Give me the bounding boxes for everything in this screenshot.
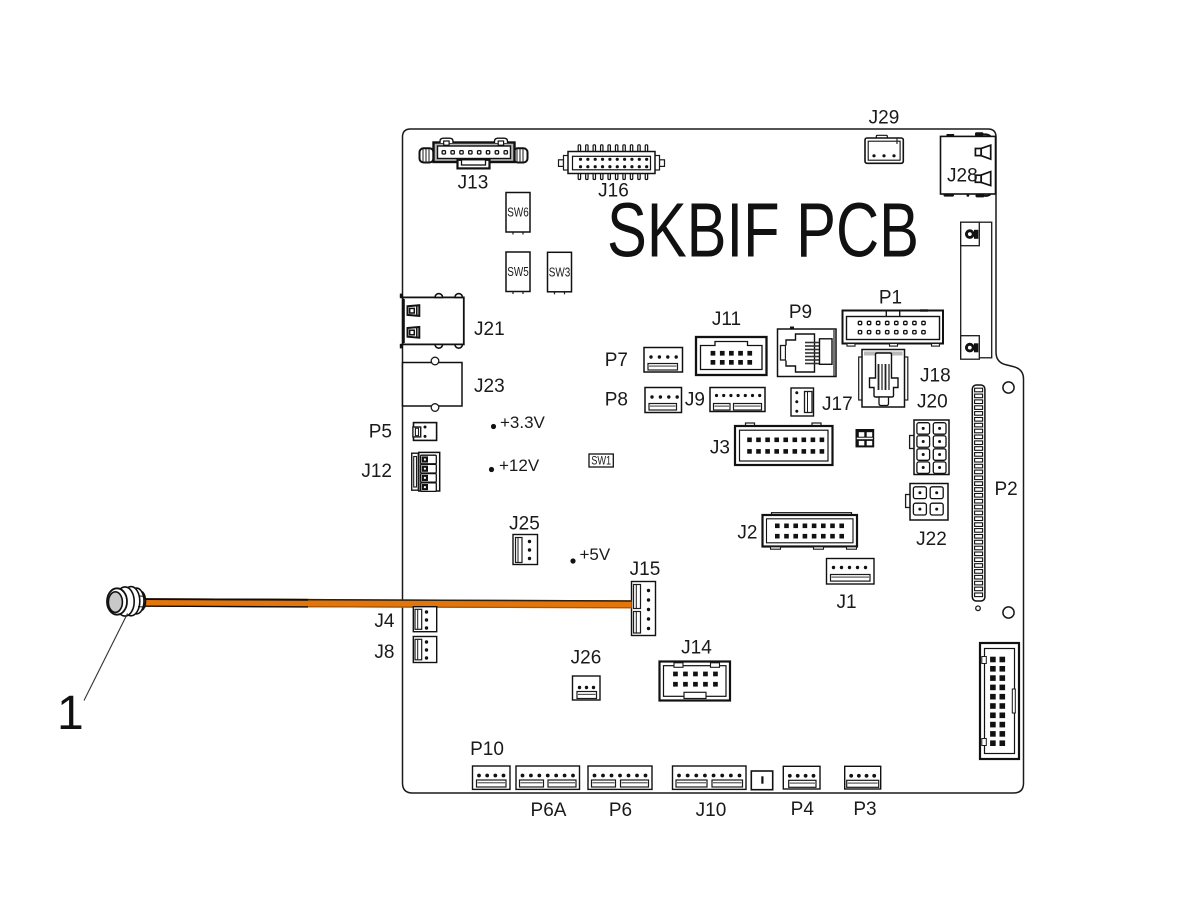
svg-text:J4: J4	[374, 611, 395, 632]
svg-text:J2: J2	[737, 523, 757, 544]
svg-text:J25: J25	[509, 514, 540, 535]
svg-text:J18: J18	[920, 366, 951, 387]
svg-text:J8: J8	[374, 642, 394, 663]
svg-text:SW1: SW1	[591, 455, 611, 467]
svg-text:+3.3V: +3.3V	[500, 413, 546, 432]
svg-text:J15: J15	[630, 559, 661, 580]
svg-text:P3: P3	[853, 799, 876, 820]
svg-text:J29: J29	[869, 108, 900, 129]
svg-text:SW5: SW5	[507, 264, 529, 279]
svg-text:J22: J22	[916, 529, 947, 550]
svg-text:J9: J9	[685, 390, 705, 411]
svg-text:J23: J23	[474, 376, 505, 397]
svg-text:J11: J11	[712, 309, 741, 330]
svg-text:P8: P8	[605, 390, 628, 411]
svg-text:J21: J21	[474, 319, 505, 340]
svg-text:SKBIF PCB: SKBIF PCB	[607, 188, 919, 274]
svg-text:P9: P9	[789, 302, 812, 323]
svg-text:P2: P2	[995, 479, 1018, 500]
svg-text:J10: J10	[696, 800, 727, 821]
svg-text:J13: J13	[458, 173, 489, 194]
svg-text:P6: P6	[609, 800, 632, 821]
svg-text:J3: J3	[710, 438, 730, 459]
svg-text:J17: J17	[822, 394, 853, 415]
svg-text:J20: J20	[917, 392, 948, 413]
svg-text:P4: P4	[791, 799, 815, 820]
svg-text:P7: P7	[605, 350, 628, 371]
svg-text:1: 1	[57, 687, 84, 740]
svg-text:SW6: SW6	[507, 205, 529, 220]
svg-text:J12: J12	[361, 461, 392, 482]
svg-text:J14: J14	[681, 638, 712, 659]
svg-text:P5: P5	[369, 422, 392, 443]
svg-text:P6A: P6A	[531, 800, 567, 821]
svg-text:J1: J1	[836, 592, 856, 613]
svg-text:SW3: SW3	[549, 264, 571, 279]
svg-text:P10: P10	[470, 739, 504, 760]
svg-text:+12V: +12V	[499, 456, 540, 475]
svg-text:J28: J28	[947, 166, 978, 187]
svg-text:J26: J26	[571, 648, 602, 669]
svg-text:+5V: +5V	[580, 545, 611, 564]
svg-text:P1: P1	[879, 288, 902, 309]
